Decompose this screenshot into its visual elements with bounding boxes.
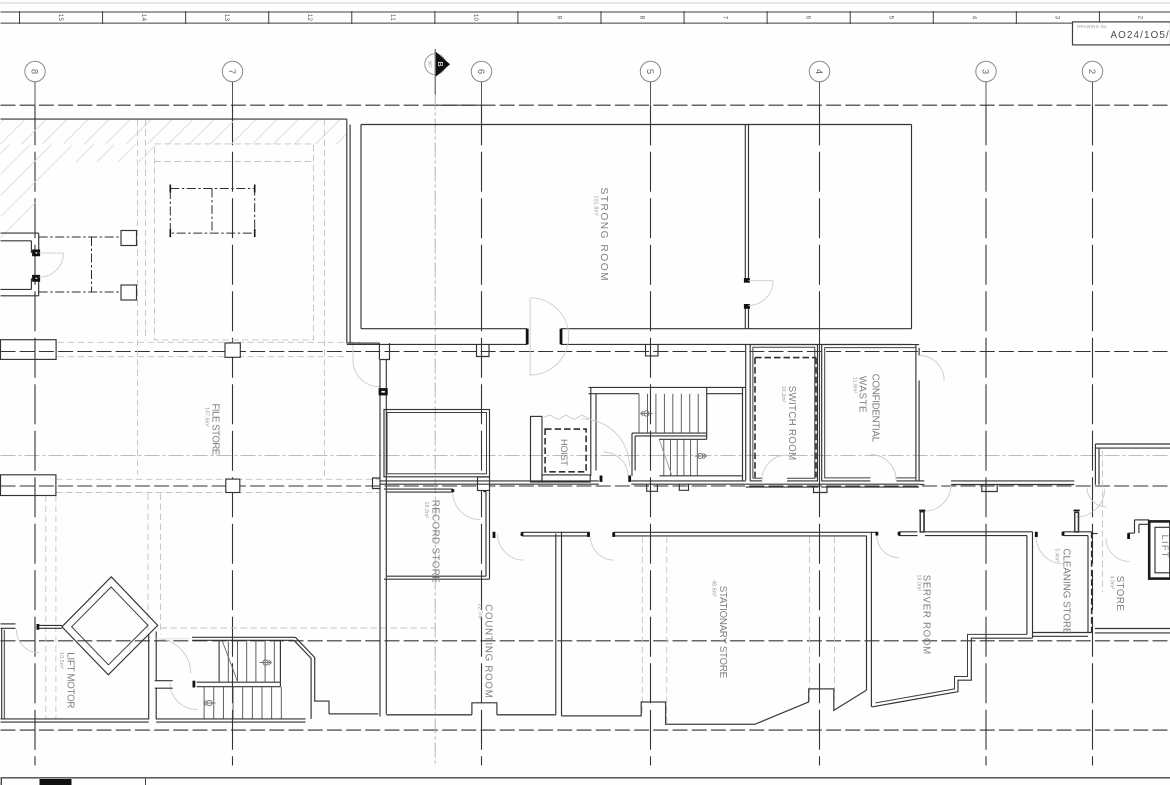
svg-text:147.6m²: 147.6m² — [204, 407, 210, 427]
svg-text:8: 8 — [638, 16, 645, 20]
svg-text:18.2m²: 18.2m² — [423, 502, 429, 519]
svg-text:LIFT: LIFT — [1160, 535, 1170, 559]
svg-text:4: 4 — [813, 69, 824, 74]
svg-text:11.8m²: 11.8m² — [851, 377, 857, 394]
svg-text:HOIST: HOIST — [559, 439, 569, 466]
svg-text:2: 2 — [1137, 16, 1144, 20]
svg-text:4: 4 — [971, 16, 978, 20]
svg-text:15: 15 — [57, 14, 64, 22]
svg-text:5: 5 — [888, 16, 895, 20]
svg-text:CLEANING STORE: CLEANING STORE — [1060, 548, 1071, 635]
svg-text:AO24/1O5/5: AO24/1O5/5 — [1111, 30, 1170, 41]
svg-text:3: 3 — [1054, 16, 1061, 20]
svg-text:SWITCH ROOM: SWITCH ROOM — [786, 386, 797, 461]
svg-text:9: 9 — [555, 16, 562, 20]
svg-text:B: B — [436, 62, 445, 67]
svg-text:3: 3 — [980, 69, 991, 74]
svg-text:10: 10 — [472, 14, 479, 22]
svg-text:CONFIDENTIAL: CONFIDENTIAL — [869, 374, 880, 443]
svg-text:8: 8 — [29, 69, 40, 74]
svg-text:48.6m²: 48.6m² — [711, 580, 717, 597]
svg-text:12: 12 — [306, 14, 313, 22]
svg-text:507: 507 — [428, 61, 433, 69]
svg-text:7: 7 — [226, 69, 237, 74]
svg-text:STRONG ROOM: STRONG ROOM — [598, 188, 609, 283]
svg-text:13: 13 — [223, 14, 230, 22]
svg-text:10.2m²: 10.2m² — [780, 386, 786, 403]
svg-text:14: 14 — [140, 14, 147, 22]
svg-text:101.8m²: 101.8m² — [593, 196, 599, 217]
svg-text:11: 11 — [389, 14, 396, 21]
svg-text:DRAWING No.: DRAWING No. — [1077, 24, 1108, 29]
svg-text:5: 5 — [644, 69, 655, 74]
svg-text:7: 7 — [721, 16, 728, 20]
svg-text:10.5m²: 10.5m² — [58, 652, 64, 669]
svg-text:COUNTING ROOM: COUNTING ROOM — [483, 604, 494, 698]
svg-text:6: 6 — [804, 16, 811, 20]
svg-text:19.0m²: 19.0m² — [916, 575, 922, 592]
svg-text:LIFT MOTOR: LIFT MOTOR — [64, 652, 75, 708]
svg-text:4.0m²: 4.0m² — [1109, 576, 1115, 590]
svg-text:STATIONARY STORE: STATIONARY STORE — [717, 586, 728, 679]
svg-text:2: 2 — [1086, 69, 1097, 74]
svg-text:RECORD STORE: RECORD STORE — [430, 500, 441, 583]
svg-text:6: 6 — [475, 69, 486, 74]
svg-text:5.4m²: 5.4m² — [1054, 549, 1060, 563]
svg-text:22.7m²: 22.7m² — [477, 604, 483, 621]
svg-text:FILE STORE: FILE STORE — [210, 404, 221, 456]
